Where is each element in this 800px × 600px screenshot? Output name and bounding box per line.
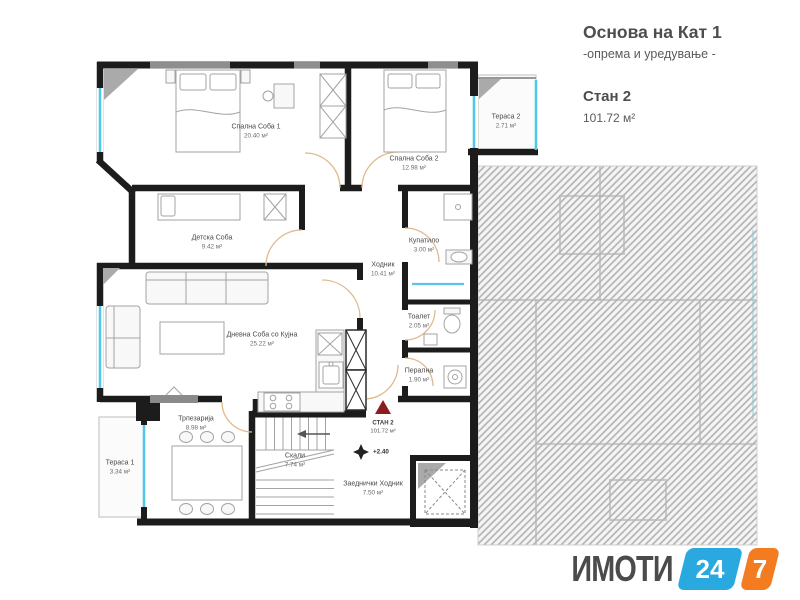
washing-machine — [444, 366, 466, 388]
level-marker-label: +2.40 — [373, 449, 389, 456]
bathroom-sink — [446, 250, 472, 264]
unit-area: 101.72 м² — [370, 428, 395, 435]
toilet-sink — [424, 334, 437, 345]
sofa-left — [106, 306, 140, 368]
wardrobe-1 — [320, 74, 346, 138]
apartment-name: Стан 2 — [583, 88, 788, 105]
shower — [444, 194, 472, 220]
logo-badge-orange: 7 — [740, 548, 780, 590]
logo-badge-blue: 24 — [677, 548, 743, 590]
logo-brand-text: ИМОТИ — [572, 548, 673, 590]
page-title: Основа на Кат 1 — [583, 22, 788, 43]
toilet — [444, 308, 460, 333]
neighbor-hatch-area — [478, 166, 757, 545]
bed-kids — [158, 194, 240, 220]
shaft-boxes — [346, 330, 366, 410]
unit-label: СТАН 2 — [370, 421, 395, 429]
page-subtitle: -опрема и уредување - — [583, 47, 788, 61]
bed-double-2 — [384, 70, 446, 152]
imoti-247-logo: ИМОТИ 24 7 — [546, 548, 776, 590]
logo-badge: 24 7 — [682, 548, 776, 590]
sofa-top — [146, 272, 268, 304]
wardrobe-kids — [264, 194, 286, 220]
apartment-area: 101.72 м² — [583, 111, 788, 125]
plan-header: Основа на Кат 1 -опрема и уредување - Ст… — [583, 22, 788, 125]
unit-entry-marker-label: СТАН 2 101.72 м² — [370, 421, 395, 436]
stove — [264, 393, 300, 411]
terrace-1-floor — [99, 417, 144, 517]
coffee-table — [160, 322, 224, 354]
floorplan-page: Спална Соба 1 20.40 м² Спална Соба 2 12.… — [0, 0, 800, 600]
logo-badge-7: 7 — [745, 548, 775, 590]
logo-badge-24: 24 — [682, 548, 738, 590]
bed-double-1 — [166, 70, 250, 152]
